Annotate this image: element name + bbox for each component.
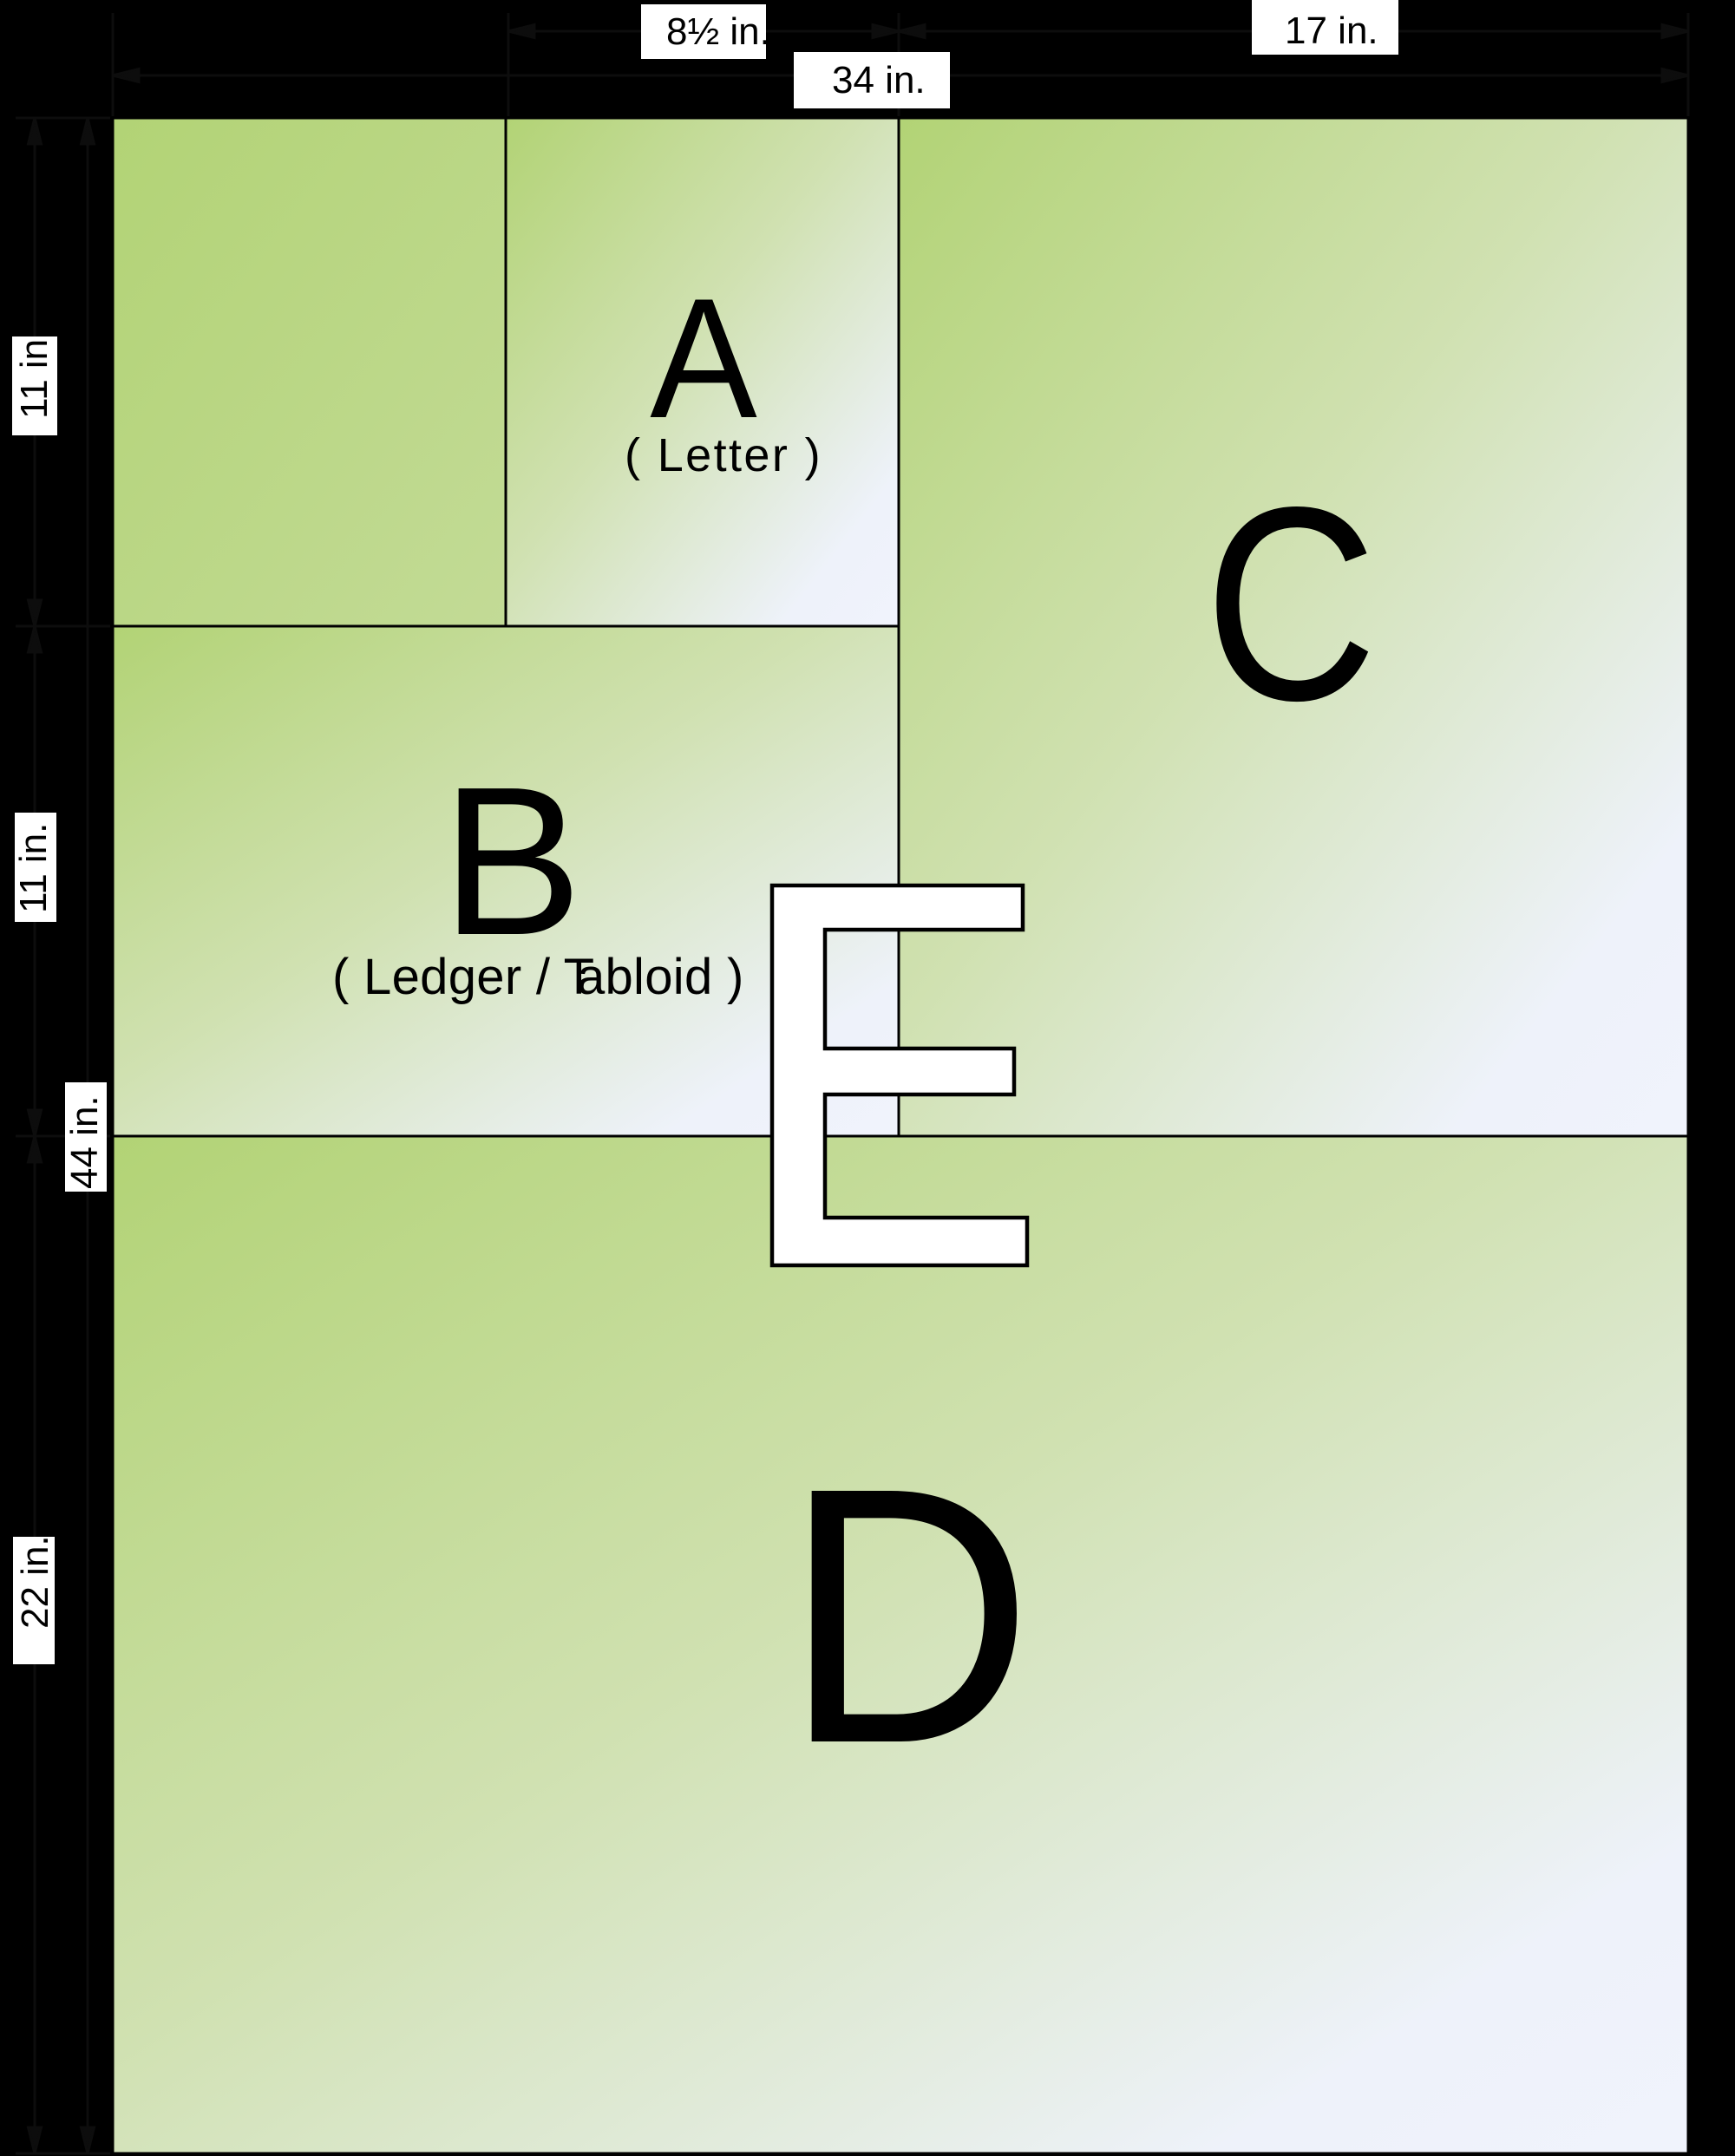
svg-text:D: D (783, 1412, 1033, 1820)
svg-text:8½ in.: 8½ in. (666, 10, 770, 53)
svg-text:A: A (650, 263, 757, 454)
svg-text:34 in.: 34 in. (832, 59, 926, 101)
svg-text:22 in.: 22 in. (14, 1535, 56, 1629)
svg-text:( Letter ): ( Letter ) (625, 429, 822, 481)
svg-text:C: C (1204, 450, 1377, 759)
svg-text:B: B (442, 742, 583, 979)
svg-text:17 in.: 17 in. (1285, 10, 1378, 52)
svg-text:( Ledger / Tabloid ): ( Ledger / Tabloid ) (332, 949, 744, 1005)
svg-text:11 in.: 11 in. (12, 823, 55, 913)
svg-text:44 in.: 44 in. (63, 1095, 106, 1189)
svg-text:11 in.: 11 in. (13, 329, 56, 419)
